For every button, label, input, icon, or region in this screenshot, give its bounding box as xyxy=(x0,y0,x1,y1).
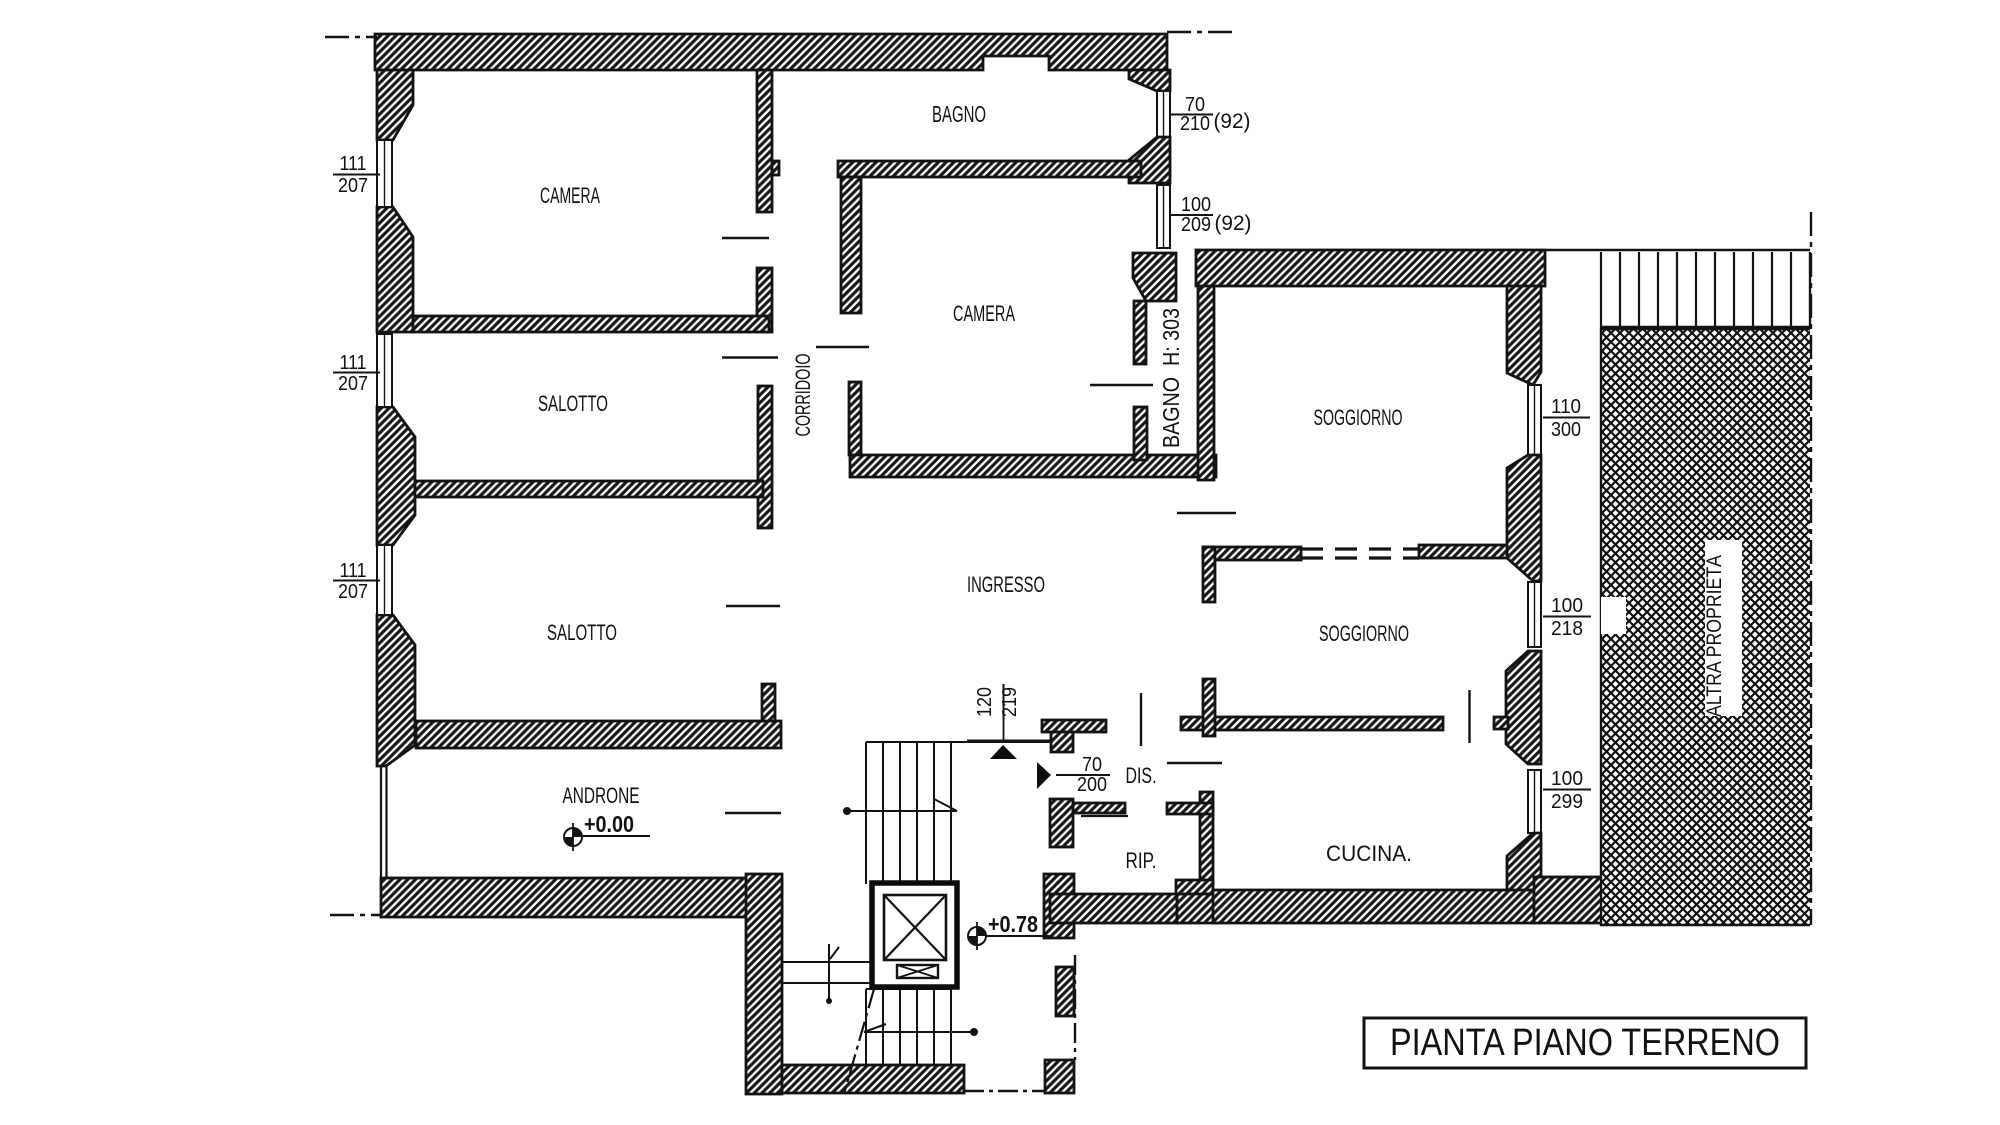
svg-text:ALTRA PROPRIETÀ: ALTRA PROPRIETÀ xyxy=(1703,555,1726,717)
svg-text:300: 300 xyxy=(1551,419,1581,441)
svg-text:SALOTTO: SALOTTO xyxy=(538,391,608,416)
svg-text:110: 110 xyxy=(1551,396,1581,418)
svg-text:SOGGIORNO: SOGGIORNO xyxy=(1319,621,1409,646)
svg-text:219: 219 xyxy=(999,687,1021,717)
svg-text:SALOTTO: SALOTTO xyxy=(547,620,617,645)
svg-text:CAMERA: CAMERA xyxy=(540,183,600,208)
svg-text:BAGNO: BAGNO xyxy=(932,101,986,127)
svg-text:(92): (92) xyxy=(1214,110,1251,133)
svg-text:+0.78: +0.78 xyxy=(988,911,1038,937)
svg-text:209: 209 xyxy=(1181,214,1211,236)
svg-text:210: 210 xyxy=(1180,113,1210,135)
svg-text:207: 207 xyxy=(338,373,368,395)
svg-text:CUCINA.: CUCINA. xyxy=(1326,841,1412,866)
svg-text:207: 207 xyxy=(338,581,368,603)
svg-text:100: 100 xyxy=(1551,595,1583,617)
svg-text:ANDRONE: ANDRONE xyxy=(563,783,640,808)
svg-text:BAGNO H: 303: BAGNO H: 303 xyxy=(1158,308,1184,448)
svg-text:CAMERA: CAMERA xyxy=(953,301,1015,326)
svg-text:111: 111 xyxy=(340,352,367,374)
svg-text:+0.00: +0.00 xyxy=(584,811,634,837)
svg-text:299: 299 xyxy=(1551,791,1583,813)
svg-text:100: 100 xyxy=(1551,768,1583,790)
svg-text:207: 207 xyxy=(338,175,368,197)
svg-text:200: 200 xyxy=(1077,774,1107,796)
svg-text:(92): (92) xyxy=(1215,212,1252,235)
svg-text:RIP.: RIP. xyxy=(1126,848,1157,873)
svg-text:PIANTA PIANO TERRENO: PIANTA PIANO TERRENO xyxy=(1390,1022,1780,1064)
svg-text:70: 70 xyxy=(1082,754,1102,776)
svg-text:INGRESSO: INGRESSO xyxy=(967,572,1045,597)
svg-text:CORRIDOIO: CORRIDOIO xyxy=(792,354,815,437)
svg-text:218: 218 xyxy=(1551,618,1583,640)
svg-text:SOGGIORNO: SOGGIORNO xyxy=(1314,405,1403,430)
svg-text:DIS.: DIS. xyxy=(1126,763,1157,788)
svg-text:111: 111 xyxy=(340,560,367,582)
svg-text:111: 111 xyxy=(340,153,367,175)
svg-text:120: 120 xyxy=(974,687,996,717)
svg-text:100: 100 xyxy=(1181,194,1211,216)
